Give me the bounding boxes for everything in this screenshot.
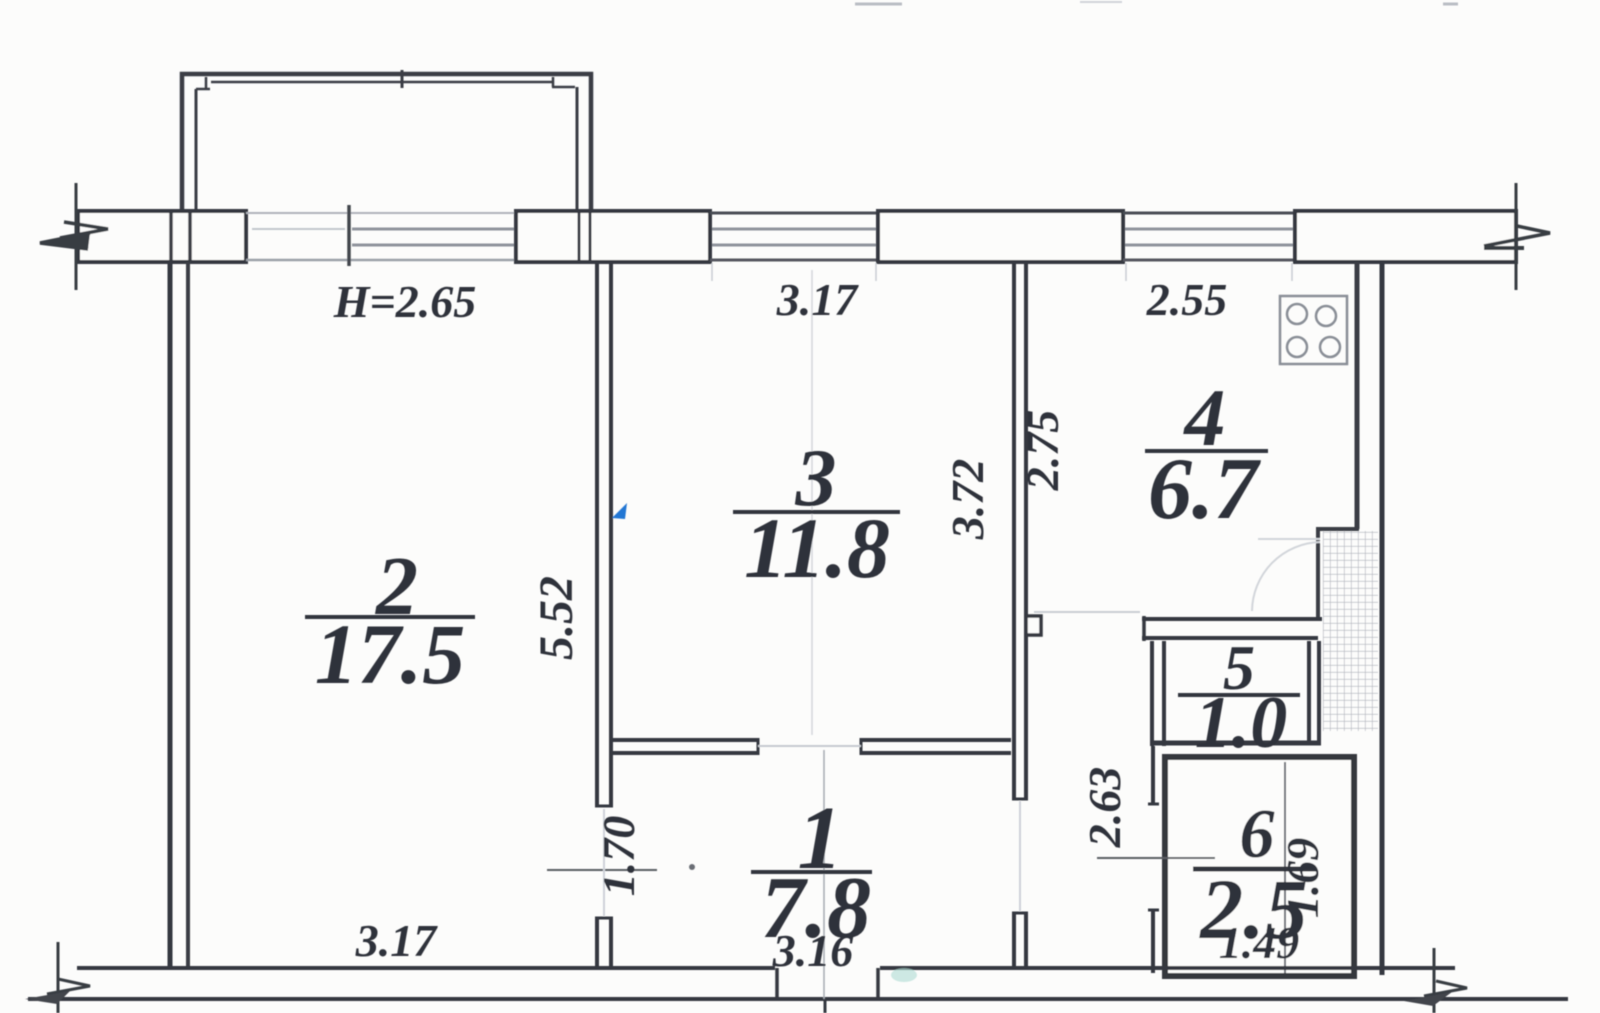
svg-text:1.70: 1.70 [593,816,644,897]
svg-text:1.0: 1.0 [1195,682,1288,764]
svg-text:3.72: 3.72 [942,459,993,541]
svg-text:2.75: 2.75 [1017,410,1068,492]
svg-text:3.17: 3.17 [355,915,439,966]
svg-text:2.55: 2.55 [1146,274,1228,325]
svg-text:3.17: 3.17 [776,274,860,325]
svg-text:5.52: 5.52 [530,576,583,660]
svg-text:6.7: 6.7 [1148,441,1261,538]
svg-text:11.8: 11.8 [744,500,890,596]
svg-text:3.16: 3.16 [772,925,854,976]
svg-text:H=2.65: H=2.65 [333,276,477,327]
svg-text:17.5: 17.5 [315,606,466,702]
svg-text:1.69: 1.69 [1277,838,1328,919]
svg-text:2.63: 2.63 [1079,767,1130,849]
svg-text:1.49: 1.49 [1219,917,1300,968]
